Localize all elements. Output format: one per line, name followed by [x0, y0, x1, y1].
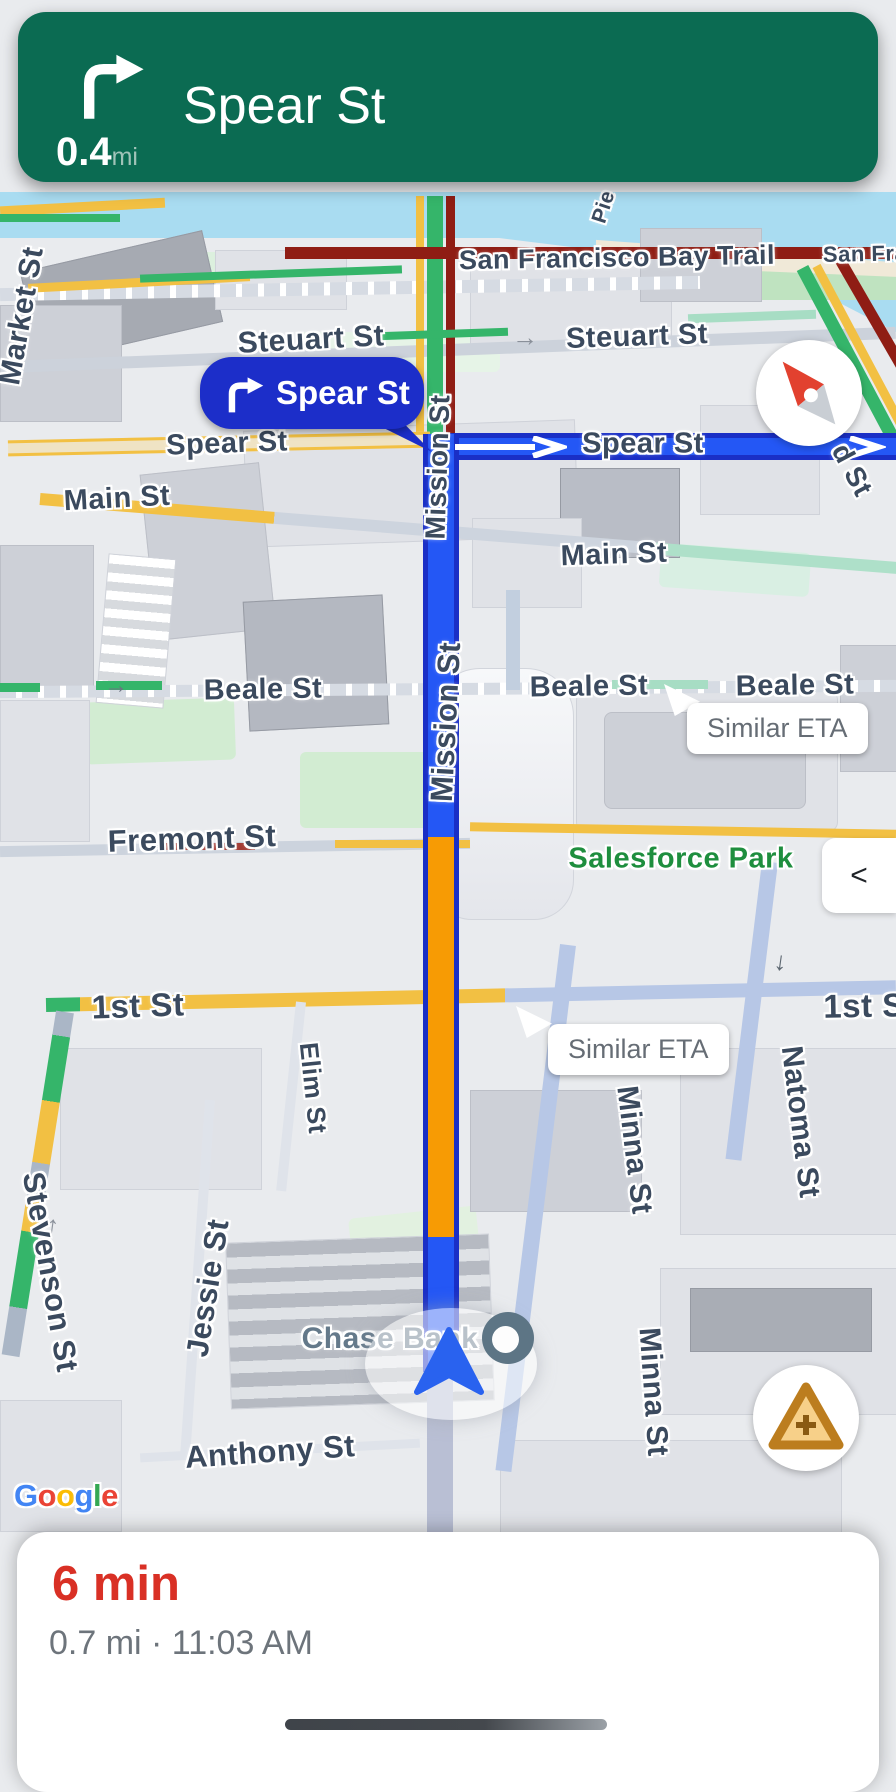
google-logo-letter: o — [38, 1478, 56, 1513]
nav-callout: Spear St — [200, 357, 424, 429]
sound-icon — [492, 1326, 519, 1353]
report-button[interactable] — [753, 1365, 859, 1471]
trip-eta: 6 min — [52, 1556, 180, 1612]
road-red — [285, 247, 896, 259]
banner-distance: 0.4mi — [56, 130, 138, 175]
navigation-banner[interactable]: 0.4mi Spear St — [18, 12, 878, 182]
road-teal — [612, 680, 708, 689]
route-mission-st — [423, 434, 459, 1372]
compass-needle-icon — [756, 340, 862, 446]
first-st-road — [46, 980, 896, 1012]
beale-vert-road — [506, 590, 520, 690]
elim-st-road — [276, 1001, 306, 1191]
road-red — [446, 196, 455, 436]
eta-bubble-2[interactable]: Similar ETA — [548, 1024, 729, 1075]
road-green — [427, 196, 443, 436]
oneway-arrow-right: → — [512, 322, 538, 353]
compass-button[interactable] — [756, 340, 862, 446]
navigation-arrow-icon — [409, 1326, 489, 1400]
google-logo-letter: G — [14, 1478, 38, 1513]
oneway-arrow-up: ↑ — [44, 1209, 61, 1242]
oneway-arrow-down: ↓ — [772, 945, 789, 978]
trip-bottom-sheet[interactable]: 6 min 0.7 mi · 11:03 AM — [17, 1532, 879, 1792]
route-direction-arrow — [455, 436, 567, 458]
road-green — [0, 683, 40, 692]
building — [680, 1048, 896, 1235]
road-teal — [688, 310, 816, 323]
sound-button[interactable] — [482, 1312, 534, 1364]
route-segment-orange — [423, 837, 459, 1237]
road-green — [0, 214, 120, 222]
collapse-panel-button[interactable]: < — [822, 838, 896, 913]
building — [0, 700, 90, 842]
building — [690, 1288, 872, 1352]
eta-bubble-tail — [516, 1006, 552, 1038]
building — [60, 1048, 262, 1190]
warning-triangle-icon — [753, 1365, 859, 1471]
banner-distance-unit: mi — [112, 143, 138, 171]
google-logo-letter: l — [93, 1478, 101, 1513]
eta-bubble-1[interactable]: Similar ETA — [687, 703, 868, 754]
google-logo: Google — [14, 1478, 118, 1514]
google-logo-letter: e — [101, 1478, 118, 1513]
map-canvas[interactable]: → → ↓ ↑ San Francisco Bay TrailSan FranP… — [0, 0, 896, 1747]
building — [243, 594, 390, 731]
nav-callout-street: Spear St — [276, 374, 410, 412]
google-logo-letter: o — [56, 1478, 74, 1513]
google-logo-letter: g — [75, 1478, 93, 1513]
building — [0, 545, 94, 697]
trip-distance-arrival: 0.7 mi · 11:03 AM — [49, 1624, 313, 1663]
route-segment-blue — [423, 434, 459, 837]
turn-right-icon — [70, 42, 150, 122]
road-red — [160, 843, 255, 850]
sheet-drag-handle[interactable] — [285, 1719, 607, 1730]
turn-right-icon — [220, 370, 266, 416]
building — [640, 228, 762, 302]
oneway-arrow-right: → — [104, 672, 128, 700]
banner-street: Spear St — [183, 76, 385, 136]
